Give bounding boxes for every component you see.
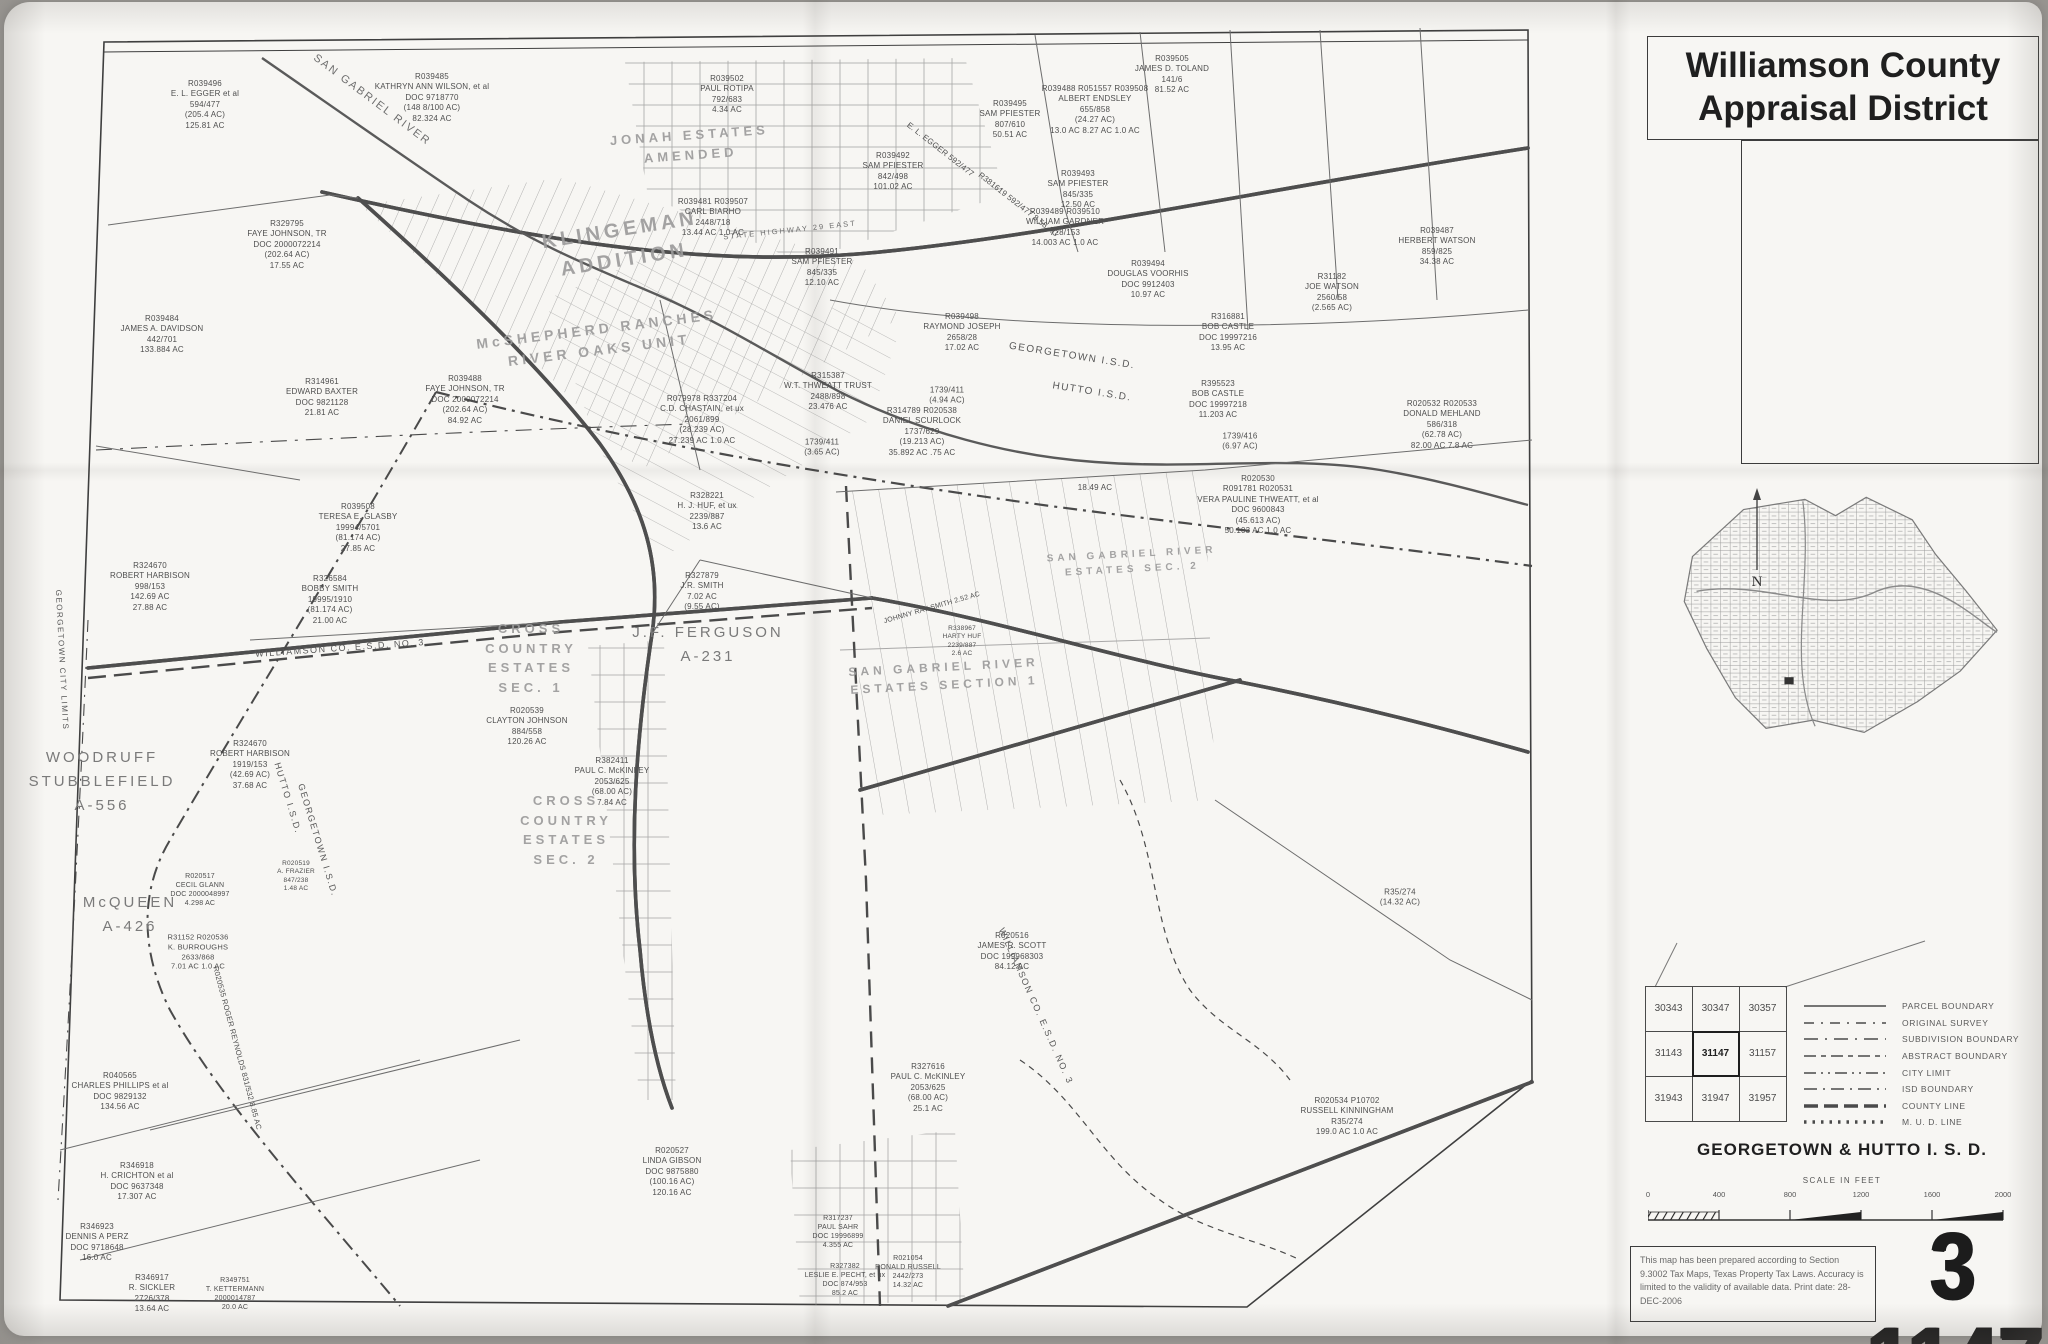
area-label: GEORGETOWN CITY LIMITS [54,590,70,731]
parcel-label: R314961EDWARD BAXTERDOC 982112821.81 AC [286,377,358,419]
parcel-label: R039495SAM PFIESTER807/61050.51 AC [979,99,1040,141]
parcel-label: R020535 ROGER REYNOLDS 831/532 8.85 AC [210,965,263,1131]
parcel-label: R327382LESLIE E. PECHT, et uxDOC 874/953… [805,1262,886,1298]
parcel-label: R039502PAUL ROTIPA792/6834.34 AC [700,74,754,116]
parcel-label: R020519A. FRAZIER847/2381.48 AC [277,860,315,894]
parcel-label: R346917R. SICKLER2726/37813.64 AC [129,1273,175,1315]
parcel-label: 18.49 AC [1078,483,1113,493]
parcel-label: R021054RONALD RUSSELL2442/27314.32 AC [875,1254,941,1290]
parcel-label: R020516JAMES R. SCOTTDOC 19996830384.12 … [977,931,1046,973]
parcel-label: R314789 R020538DANIEL SCURLOCK1737/629(1… [883,406,961,458]
parcel-label: JOHNNY RAY SMITH 2.52 AC [883,590,981,626]
scanned-map-sheet: KLINGEMANADDITIONMcSHEPHERD RANCHESRIVER… [0,0,2048,1344]
area-label: WILLIAMSON CO. E.S.D. NO. 3 [255,637,425,659]
parcel-label: R31182JOE WATSON2560/58(2.565 AC) [1305,272,1359,314]
parcel-label: R315387W.T. THWEATT TRUST2488/89823.476 … [784,371,872,413]
area-label: J.F. FERGUSONA-231 [632,621,784,669]
parcel-label: R395523BOB CASTLEDOC 1999721811.203 AC [1189,379,1247,421]
parcel-label: R039493SAM PFIESTER845/33512.50 AC [1047,169,1108,211]
parcel-label: R35/274(14.32 AC) [1380,888,1420,909]
parcel-label: R020517CECIL GLANNDOC 20000489974.298 AC [170,872,229,908]
parcel-label: R382411PAUL C. McKINLEY2053/625(68.00 AC… [575,756,650,808]
parcel-label: R328221H. J. HUF, et ux2239/88713.6 AC [677,491,736,533]
area-label: JONAH ESTATESAMENDED [609,120,770,170]
parcel-label: R346918H. CRICHTON et alDOC 963734817.30… [100,1161,173,1203]
area-label: WOODRUFFSTUBBLEFIELDA-556 [29,746,176,818]
parcel-label: R329795FAYE JOHNSON, TRDOC 2000072214(20… [247,219,326,271]
area-label: HUTTO I.S.D. [1052,380,1133,403]
area-label: CROSSCOUNTRYESTATESSEC. 1 [485,619,577,697]
parcel-label: R020530R091781 R020531VERA PAULINE THWEA… [1197,474,1318,536]
parcel-label: R039494DOUGLAS VOORHISDOC 991240310.97 A… [1107,259,1188,301]
area-label: SAN GABRIEL RIVERESTATES SEC. 2 [1046,543,1217,582]
parcel-label: R039498RAYMOND JOSEPH2658/2817.02 AC [923,312,1000,354]
parcel-label: R039485KATHRYN ANN WILSON, et alDOC 9718… [375,72,490,124]
parcel-label: R326584BOBBY SMITH19995/1910(81.174 AC)2… [302,574,359,626]
parcel-label: R327616PAUL C. McKINLEY2053/625(68.00 AC… [891,1062,966,1114]
parcel-label: R324670ROBERT HARBISON1919/153(42.69 AC)… [210,739,290,791]
parcel-label: R039481 R039507CARL BIARHO2448/71813.44 … [678,197,748,239]
parcel-label: 1739/416(6.97 AC) [1222,432,1258,453]
parcel-label: R079978 R337204C.D. CHASTAIN, et ux2061/… [660,394,744,446]
parcel-label: R020539CLAYTON JOHNSON884/558120.26 AC [486,706,567,748]
parcel-label: 1739/411(3.65 AC) [804,438,840,459]
parcel-label: R327879J.R. SMITH7.02 AC(9.55 AC) [680,571,723,613]
parcel-label: R020534 P10702RUSSELL KINNINGHAMR35/2741… [1300,1096,1393,1138]
parcel-label: R349751T. KETTERMANN200001478720.0 AC [206,1276,264,1312]
parcel-label: R338967HARTY HUF2239/8872.6 AC [943,625,982,659]
parcel-label: R039491SAM PFIESTER845/33512.10 AC [791,247,852,289]
area-label: GEORGETOWN I.S.D. [1008,341,1136,372]
parcel-label: R020532 R020533DONALD MEHLAND586/318(62.… [1403,399,1480,451]
parcel-label: R039488FAYE JOHNSON, TRDOC 2000072214(20… [425,374,504,426]
parcel-label: R346923DENNIS A PERZDOC 971864816.0 AC [65,1222,128,1264]
parcel-label: R039492SAM PFIESTER842/498101.02 AC [862,151,923,193]
map-label-layer: KLINGEMANADDITIONMcSHEPHERD RANCHESRIVER… [0,0,2048,1344]
area-label: McSHEPHERD RANCHESRIVER OAKS UNIT [475,304,721,375]
parcel-label: R039496E. L. EGGER et al594/477(205.4 AC… [171,79,239,131]
parcel-label: R020527LINDA GIBSONDOC 9875880(100.16 AC… [643,1146,702,1198]
parcel-label: R039484JAMES A. DAVIDSON442/701133.884 A… [121,314,204,356]
parcel-label: R039508TERESA E. GLASBY19994/5701(81.174… [319,502,398,554]
parcel-label: R040565CHARLES PHILLIPS et alDOC 9829132… [72,1071,169,1113]
parcel-label: R316881BOB CASTLEDOC 1999721613.95 AC [1199,312,1257,354]
parcel-label: R039488 R051557 R039508ALBERT ENDSLEY655… [1042,84,1148,136]
parcel-label: R317237PAUL SAHRDOC 199968994.355 AC [812,1214,863,1250]
area-label: McQUEENA-426 [83,891,177,939]
area-label: SAN GABRIEL RIVERESTATES SECTION 1 [848,653,1040,699]
parcel-label: R039505JAMES D. TOLAND141/681.52 AC [1135,54,1209,96]
parcel-label: R324670ROBERT HARBISON998/153142.69 AC27… [110,561,190,613]
parcel-label: R039487HERBERT WATSON859/82534.38 AC [1398,226,1475,268]
parcel-label: 1739/411(4.94 AC) [929,386,965,407]
